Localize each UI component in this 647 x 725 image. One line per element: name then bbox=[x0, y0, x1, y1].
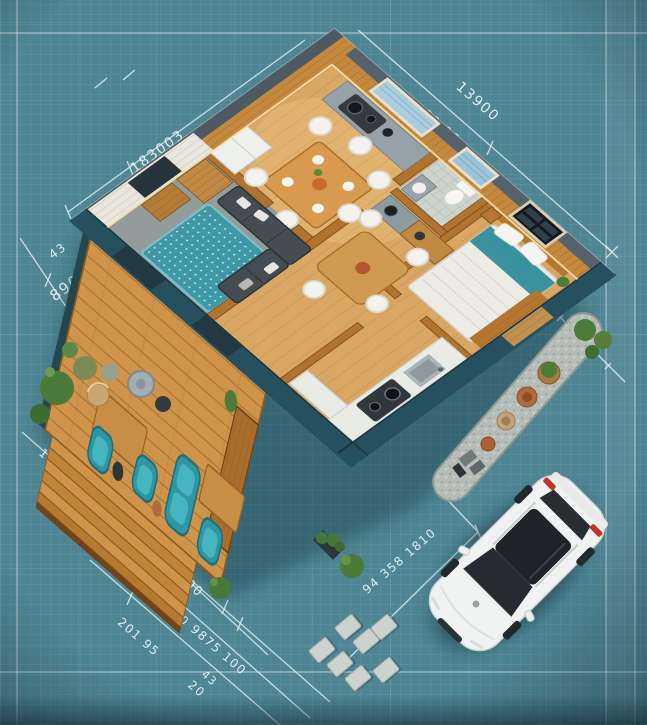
blueprint-grid-background: 183003 40 X 80 13900 90 06 200 44 43 890… bbox=[0, 0, 647, 725]
vignette bbox=[0, 0, 647, 725]
floor-plan-scene: 183003 40 X 80 13900 90 06 200 44 43 890… bbox=[0, 0, 647, 725]
bottom-fade bbox=[0, 695, 647, 725]
